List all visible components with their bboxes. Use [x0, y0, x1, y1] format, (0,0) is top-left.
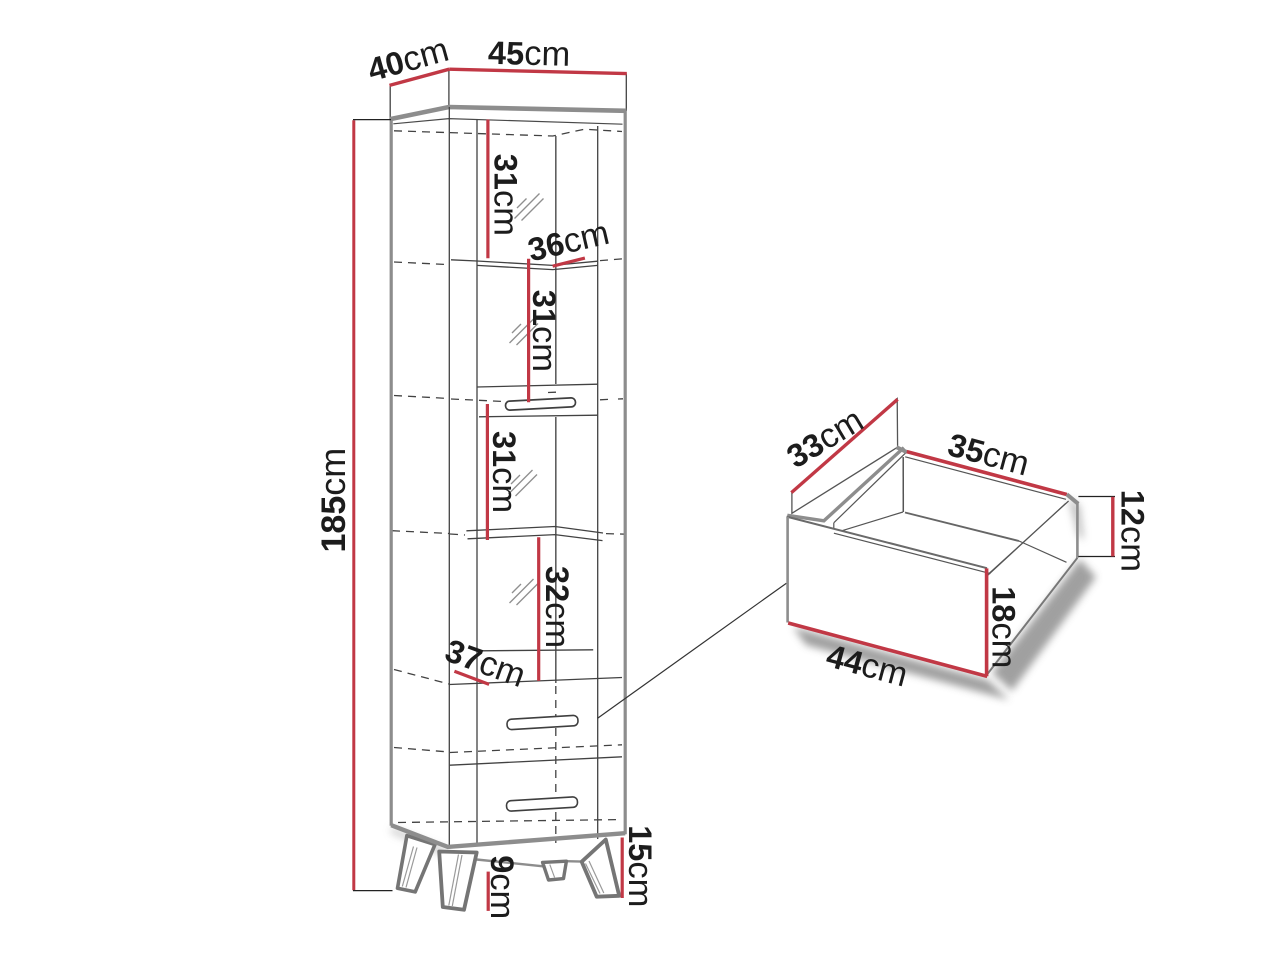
svg-text:15cm: 15cm [621, 825, 659, 907]
svg-text:45cm: 45cm [488, 34, 571, 74]
svg-text:185cm: 185cm [312, 448, 353, 553]
svg-text:32cm: 32cm [538, 566, 576, 648]
svg-text:18cm: 18cm [984, 586, 1022, 668]
svg-text:31cm: 31cm [485, 431, 523, 513]
svg-text:12cm: 12cm [1114, 490, 1152, 572]
svg-text:31cm: 31cm [486, 154, 524, 236]
svg-text:31cm: 31cm [525, 290, 563, 372]
svg-text:9cm: 9cm [483, 855, 521, 919]
